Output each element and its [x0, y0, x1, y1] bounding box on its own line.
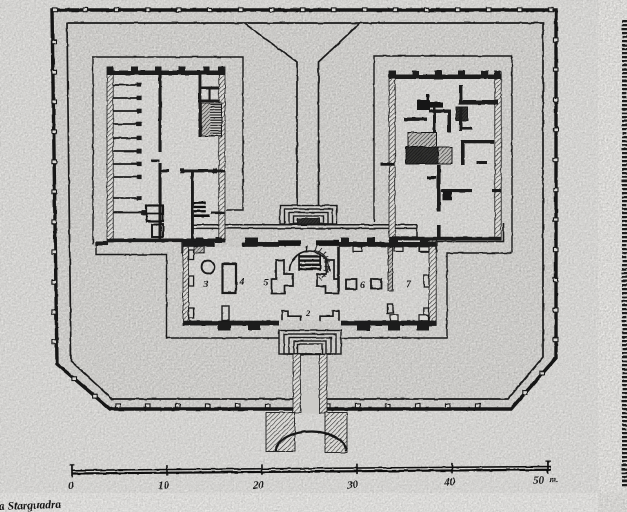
svg-text:40: 40: [443, 476, 457, 489]
svg-text:m.: m.: [549, 474, 558, 484]
svg-text:0: 0: [68, 480, 74, 492]
svg-text:4: 4: [239, 277, 245, 288]
svg-text:30: 30: [345, 478, 359, 492]
svg-text:6: 6: [360, 280, 365, 291]
svg-text:2: 2: [305, 308, 311, 318]
svg-text:3: 3: [203, 279, 209, 290]
svg-text:1: 1: [304, 245, 309, 256]
svg-text:ca Starguadra: ca Starguadra: [0, 499, 62, 512]
svg-text:20: 20: [252, 479, 265, 491]
svg-text:10: 10: [158, 480, 170, 492]
svg-text:5: 5: [264, 278, 269, 289]
svg-text:50: 50: [533, 475, 545, 487]
